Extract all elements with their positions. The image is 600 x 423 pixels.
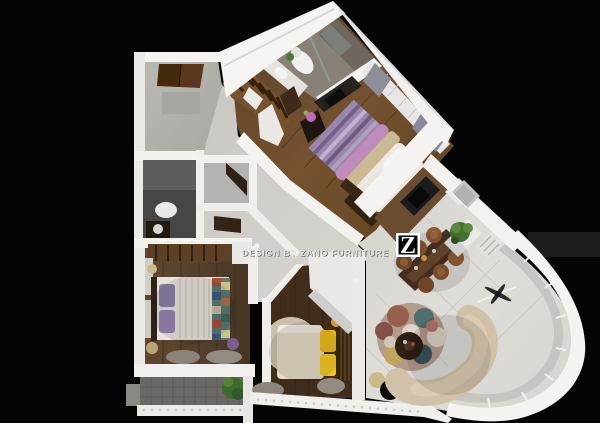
svg-text:DESIGN BY ZANO FURNITURE: DESIGN BY ZANO FURNITURE [242, 248, 389, 258]
svg-text:Z: Z [400, 233, 416, 259]
